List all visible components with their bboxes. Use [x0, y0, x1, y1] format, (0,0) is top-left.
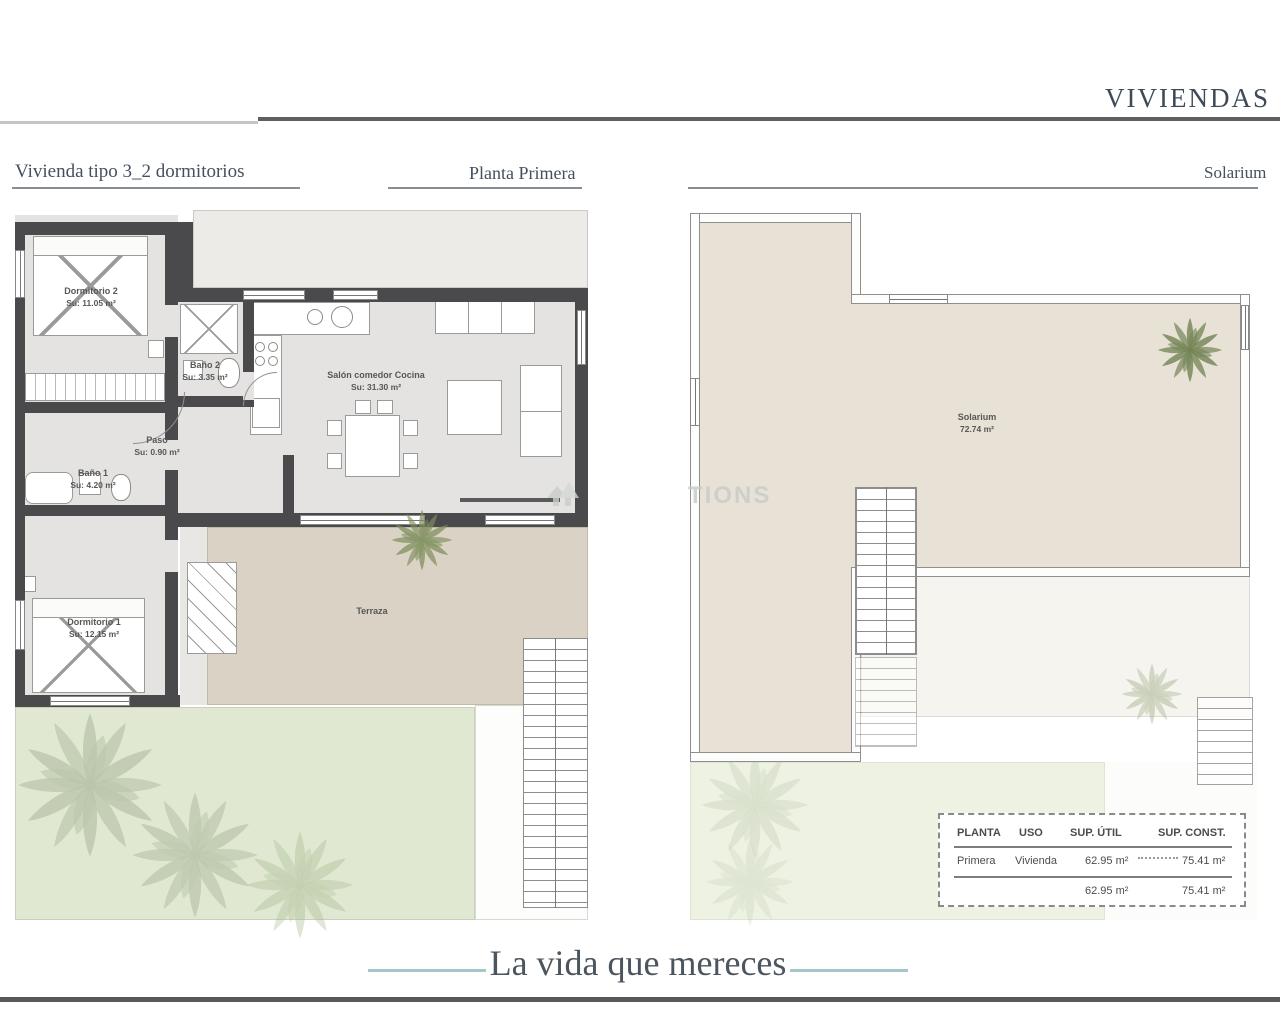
chair [327, 420, 342, 436]
house-icon [545, 478, 581, 512]
chair [377, 400, 393, 414]
chair [355, 400, 371, 414]
sofa [520, 365, 562, 457]
dining-table [345, 415, 400, 477]
window [690, 378, 700, 426]
room-name: Baño 2 [140, 360, 270, 372]
floor-plan-planta-primera: Dormitorio 2 Su: 11.05 m² Baño 2 Su: 3.3… [15, 210, 588, 920]
window [50, 696, 130, 706]
stairwell-lower [855, 657, 917, 747]
plan-sheet: VIVIENDAS Vivienda tipo 3_2 dormitorios … [0, 0, 1280, 1024]
table-cell-uso: Vivienda [1015, 855, 1057, 867]
room-area: Su: 11.05 m² [26, 298, 156, 309]
left-plan-title: Vivienda tipo 3_2 dormitorios [15, 161, 244, 183]
window [243, 290, 305, 300]
window [577, 310, 586, 365]
chair [403, 453, 418, 469]
left-plan-sheet-label: Planta Primera [469, 163, 575, 184]
palm-tree-icon [1119, 661, 1185, 727]
room-name: Salón comedor Cocina [311, 370, 441, 382]
tagline-rule-right [790, 969, 908, 972]
room-name: Paso [92, 435, 222, 447]
lower-terrace-area [861, 567, 1250, 717]
room-label-paso: Paso Su: 0.90 m² [92, 435, 222, 458]
table-header-sup-const: SUP. CONST. [1158, 827, 1226, 839]
table-cell-sup-const: 75.41 m² [1182, 855, 1225, 867]
table-rule [954, 846, 1232, 848]
watermark-text: TIONS [688, 482, 771, 510]
page-title: VIVIENDAS [1105, 83, 1270, 114]
window [1241, 305, 1249, 350]
header-rule-light [0, 121, 258, 124]
nightstand [148, 340, 164, 358]
garden-steps [187, 562, 237, 654]
palm-tree-icon [242, 827, 358, 943]
table-rule [954, 876, 1232, 878]
window [333, 290, 378, 300]
room-label-terraza: Terraza [307, 606, 437, 618]
right-plan-sheet-label: Solarium [1204, 163, 1266, 183]
table-total-sup-const: 75.41 m² [1182, 885, 1225, 897]
coffee-table [447, 380, 502, 435]
table-cell-planta: Primera [957, 855, 996, 867]
palm-tree-icon [1155, 315, 1225, 385]
wall [851, 213, 861, 304]
door-opening [165, 540, 178, 572]
room-label-dormitorio2: Dormitorio 2 Su: 11.05 m² [26, 286, 156, 309]
chair [403, 420, 418, 436]
room-label-dormitorio1: Dormitorio 1 Su: 12.15 m² [29, 617, 159, 640]
exterior-staircase [1197, 697, 1253, 785]
stair-rail [555, 638, 556, 908]
room-name: Baño 1 [28, 468, 158, 480]
kitchen-sink [331, 306, 353, 328]
room-area: Su: 12.15 m² [29, 629, 159, 640]
wall [15, 505, 178, 516]
header-rule-dark [258, 117, 1280, 121]
window [889, 294, 948, 304]
wall [15, 222, 180, 235]
room-name: Dormitorio 2 [26, 286, 156, 298]
window [15, 250, 25, 298]
chair [327, 453, 342, 469]
room-area: 72.74 m² [912, 424, 1042, 435]
tagline: La vida que mereces [478, 942, 798, 984]
table-header-uso: USO [1019, 827, 1043, 839]
room-name: Dormitorio 1 [29, 617, 159, 629]
bed-pillow [33, 236, 148, 256]
upper-terrace-area [193, 210, 588, 288]
hob-burner [255, 342, 265, 352]
hob-burner [268, 342, 278, 352]
dotted-leader [1138, 857, 1178, 859]
palm-tree-icon [389, 507, 455, 573]
palm-tree-icon [702, 834, 798, 930]
window [485, 515, 555, 525]
stair-rail [886, 487, 887, 655]
footer-rule [0, 997, 1280, 1002]
window [15, 600, 25, 650]
tagline-rule-left [368, 969, 486, 972]
title-underline-right [688, 187, 1258, 189]
kitchen-sink [307, 309, 323, 325]
title-underline-left [12, 187, 300, 189]
wall [690, 213, 861, 223]
table-header-sup-util: SUP. ÚTIL [1070, 827, 1122, 839]
surface-summary-table: PLANTA USO SUP. ÚTIL SUP. CONST. Primera… [938, 813, 1246, 907]
bed-pillow [32, 598, 145, 618]
door-opening [165, 305, 178, 337]
title-underline-center [388, 187, 582, 189]
wall [283, 455, 294, 513]
room-name: Terraza [307, 606, 437, 618]
wall [690, 752, 861, 762]
room-label-salon: Salón comedor Cocina Su: 31.30 m² [311, 370, 441, 393]
room-area: Su: 0.90 m² [92, 447, 222, 458]
room-area: Su: 31.30 m² [311, 382, 441, 393]
room-name: Solarium [912, 412, 1042, 424]
table-cell-sup-util: 62.95 m² [1085, 855, 1128, 867]
room-label-bano2: Baño 2 Su: 3.35 m² [140, 360, 270, 383]
room-label-solarium: Solarium 72.74 m² [912, 412, 1042, 435]
room-area: Su: 3.35 m² [140, 372, 270, 383]
table-header-planta: PLANTA [957, 827, 1001, 839]
shower [180, 304, 238, 354]
table-total-sup-util: 62.95 m² [1085, 885, 1128, 897]
room-label-bano1: Baño 1 Su: 4.20 m² [28, 468, 158, 491]
wall [165, 222, 193, 302]
room-area: Su: 4.20 m² [28, 480, 158, 491]
